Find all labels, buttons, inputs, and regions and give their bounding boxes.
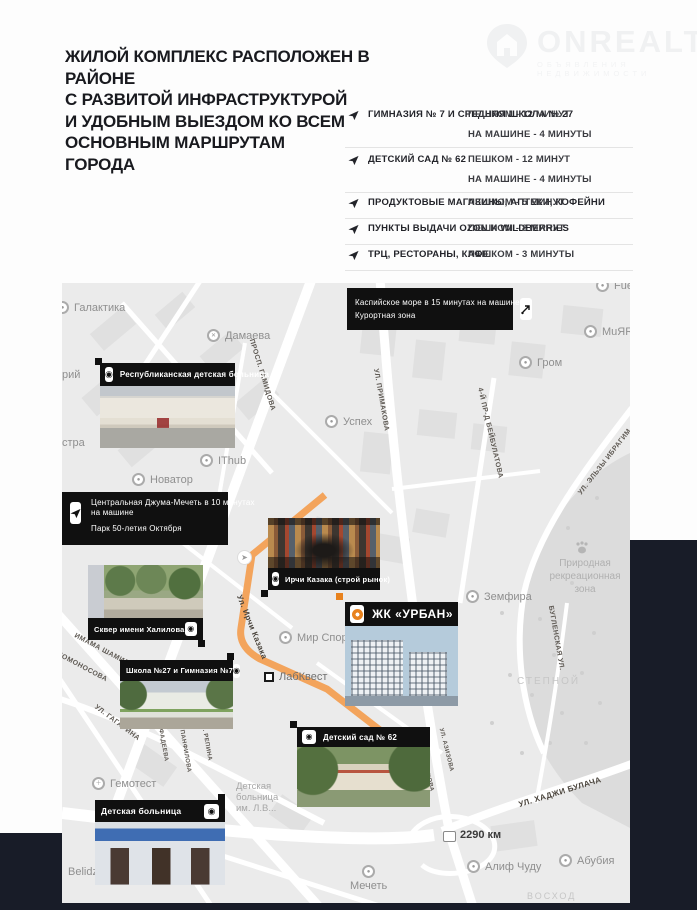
callout-anchor-orange bbox=[336, 593, 343, 600]
divider bbox=[345, 270, 633, 271]
camera-icon: ◉ bbox=[272, 572, 279, 586]
callout-mosque-park: Центральная Джума-Мечеть в 10 минутах на… bbox=[62, 492, 228, 545]
amenity-time: ПЕШКОМ - 12 МИНУТ bbox=[468, 154, 570, 165]
poi-ithub: ●IThub bbox=[200, 454, 246, 467]
callout-market: ◉ Ирчи Казака (строй рынок) bbox=[268, 568, 380, 590]
district-label-voskhod: ВОСХОД bbox=[527, 891, 576, 901]
divider bbox=[345, 244, 633, 245]
callout-detsad: ◉ Детский сад № 62 bbox=[297, 727, 430, 747]
area-label-child-hospital: больница bbox=[236, 792, 278, 803]
amenity-time: ПЕШКОМ - 8 МИНУТ bbox=[468, 223, 565, 234]
divider bbox=[345, 147, 633, 148]
poi-gemotest: ＋Гемотест bbox=[92, 777, 156, 790]
poi-icon: ● bbox=[279, 631, 292, 644]
area-label-nature: Природная bbox=[520, 557, 630, 570]
poi-zemfira: ●Земфира bbox=[466, 590, 532, 603]
poi-icon: ● bbox=[467, 860, 480, 873]
onrealt-watermark: ONREALT ОБЪЯВЛЕНИЯ НЕДВИЖИМОСТИ bbox=[487, 24, 697, 78]
poi-abubiya: ●Абубия bbox=[559, 854, 614, 867]
decor-navy-bottom-strip bbox=[0, 903, 697, 910]
poi-icon: ● bbox=[325, 415, 338, 428]
area-label-child-hospital: Детская bbox=[236, 781, 271, 792]
poi-icon: ● bbox=[584, 325, 597, 338]
photo-school-27 bbox=[120, 681, 233, 729]
navigation-arrow-icon bbox=[348, 198, 359, 209]
district-label-stepnoy: СТЕПНОЙ bbox=[517, 676, 580, 687]
urban-logo-icon bbox=[350, 605, 364, 623]
area-label-nature: зона bbox=[520, 583, 630, 596]
amenity-time: ПЕШКОМ - 12 МИНУТ bbox=[468, 109, 570, 120]
poi-mechet: Мечеть bbox=[350, 880, 387, 892]
poi-fuel: ●Fuel bbox=[596, 283, 630, 292]
callout-anchor bbox=[261, 590, 268, 597]
onrealt-logo-text: ONREALT bbox=[537, 24, 697, 60]
callout-anchor bbox=[227, 653, 234, 660]
callout-zhk-urban: ЖК «УРБАН» bbox=[345, 602, 458, 626]
callout-child-hospital: Детская больница ◉ bbox=[95, 800, 225, 822]
photo-zhk-urban bbox=[345, 626, 458, 706]
camera-icon: ◉ bbox=[204, 804, 219, 819]
onrealt-logo-tagline: ОБЪЯВЛЕНИЯ НЕДВИЖИМОСТИ bbox=[537, 60, 697, 78]
photo-child-hospital bbox=[95, 822, 225, 885]
poi-icon: ● bbox=[466, 590, 479, 603]
poi-grom: ●Гром bbox=[519, 356, 562, 369]
poi-novator: ●Новатор bbox=[132, 473, 193, 486]
camera-icon: ◉ bbox=[302, 730, 316, 744]
divider bbox=[345, 218, 633, 219]
photo-rdkb-hospital bbox=[100, 386, 235, 448]
paw-icon bbox=[574, 541, 590, 555]
km-marker-label: 2290 км bbox=[460, 829, 501, 841]
poi-uspekh: ●Успех bbox=[325, 415, 372, 428]
photo-skver-khalilova bbox=[88, 565, 203, 618]
decor-navy-right bbox=[630, 540, 697, 910]
callout-school: Школа №27 и Гимназия №7 ◉ bbox=[120, 660, 233, 681]
divider bbox=[345, 192, 633, 193]
poi-icon: ● bbox=[559, 854, 572, 867]
poi-damaeva: ✕Дамаева bbox=[207, 329, 270, 342]
route-arrow-icon bbox=[520, 298, 532, 320]
poi-alif-chudu: ●Алиф Чуду bbox=[467, 860, 541, 873]
area-label-child-hospital: им. Л.В... bbox=[236, 803, 276, 814]
poi-icon: ＋ bbox=[92, 777, 105, 790]
navigation-arrow-icon bbox=[348, 250, 359, 261]
callout-caspian-sea: Каспийское море в 15 минутах на машине К… bbox=[347, 288, 513, 330]
poi-icon: ● bbox=[132, 473, 145, 486]
map-label-partial: рий bbox=[62, 369, 80, 381]
poi-icon: ● bbox=[62, 301, 69, 314]
poi-mechet-icon: ● bbox=[362, 865, 375, 878]
amenity-time: ПЕШКОМ - 3 МИНУТЫ bbox=[468, 249, 574, 260]
area-label-nature: рекреационная bbox=[520, 570, 630, 583]
photo-detsad-62 bbox=[297, 747, 430, 807]
km-sign-icon bbox=[443, 831, 456, 842]
callout-anchor bbox=[290, 721, 297, 728]
callout-rdkb: ◉ Республиканская детская больница bbox=[100, 363, 235, 386]
amenity-label: ДЕТСКИЙ САД № 62 bbox=[368, 154, 466, 165]
poi-square-icon bbox=[264, 672, 274, 682]
map-label-partial: стра bbox=[62, 437, 85, 449]
location-map: рий стра Belidzh ПРОСП. ГАМИДОВА УЛ. ПРИ… bbox=[62, 283, 630, 910]
amenity-time: ПЕШКОМ - 5 МИНУТ bbox=[468, 197, 565, 208]
poi-icon: ● bbox=[519, 356, 532, 369]
onrealt-logo-icon bbox=[487, 24, 527, 73]
road-direction-icon: ➤ bbox=[238, 551, 251, 564]
poi-murrad: ●MuЯRad bbox=[584, 325, 630, 338]
poi-galaktika: ●Галактика bbox=[62, 301, 125, 314]
amenity-time: НА МАШИНЕ - 4 МИНУТЫ bbox=[468, 174, 592, 185]
amenity-time: НА МАШИНЕ - 4 МИНУТЫ bbox=[468, 129, 592, 140]
poi-icon: ● bbox=[200, 454, 213, 467]
callout-anchor bbox=[198, 640, 205, 647]
decor-navy-bottom-left bbox=[0, 833, 62, 910]
navigation-arrow-icon bbox=[348, 155, 359, 166]
navigation-arrow-icon bbox=[70, 502, 81, 524]
photo-irchi-kazaka-market bbox=[268, 518, 380, 568]
poi-icon: ● bbox=[596, 283, 609, 292]
camera-icon: ◉ bbox=[185, 622, 197, 636]
navigation-arrow-icon bbox=[348, 110, 359, 121]
poi-icon: ✕ bbox=[207, 329, 220, 342]
poi-labkvest: ЛабКвест bbox=[264, 671, 327, 683]
callout-skver: Сквер имени Халилова ◉ bbox=[88, 618, 203, 640]
camera-icon: ◉ bbox=[233, 664, 240, 678]
navigation-arrow-icon bbox=[348, 224, 359, 235]
camera-icon: ◉ bbox=[105, 367, 113, 382]
